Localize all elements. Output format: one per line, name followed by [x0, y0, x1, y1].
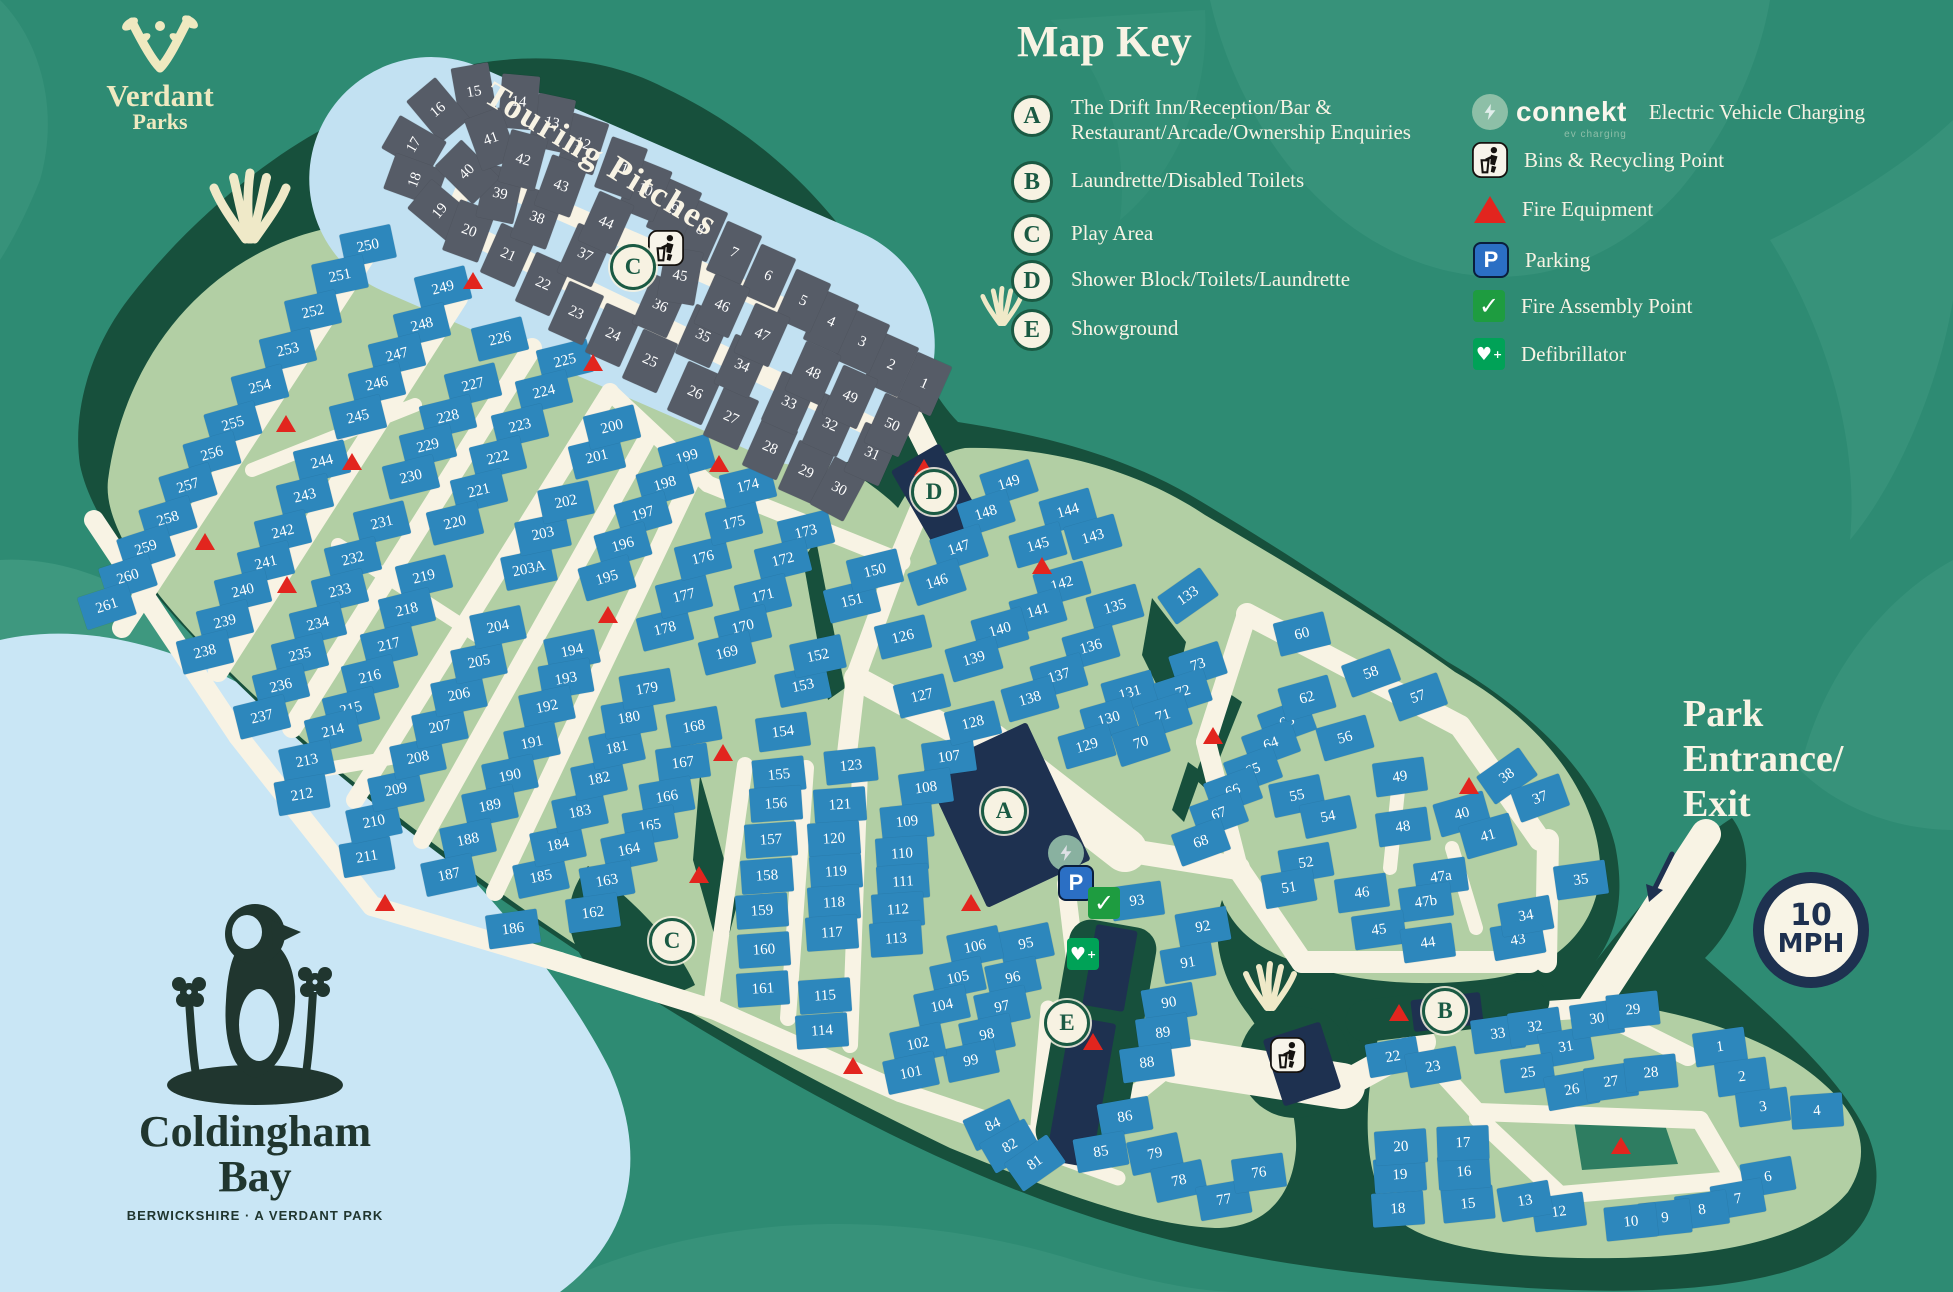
fire-equipment-icon[interactable] [1611, 1137, 1631, 1154]
bins-icon [1472, 142, 1508, 178]
speed-limit-sign: 10 MPH [1753, 872, 1869, 988]
holiday-pitch-17[interactable]: 17 [1436, 1125, 1489, 1161]
fire-assembly-icon[interactable]: ✓ [1086, 885, 1122, 921]
speed-value: 10 [1790, 901, 1832, 931]
key-marker-b: B [1011, 161, 1053, 203]
legend-label-bins: Bins & Recycling Point [1524, 148, 1724, 173]
holiday-pitch-76[interactable]: 76 [1231, 1153, 1287, 1194]
fire-equipment-icon[interactable] [689, 866, 709, 883]
speed-unit: MPH [1778, 931, 1845, 958]
holiday-pitch-162[interactable]: 162 [565, 893, 621, 934]
ev-charging-icon [1472, 94, 1508, 130]
fire-equipment-icon[interactable] [1032, 557, 1052, 574]
verdant-leaf-icon [118, 14, 202, 80]
key-marker-c: C [1011, 214, 1053, 256]
holiday-pitch-10[interactable]: 10 [1603, 1202, 1658, 1241]
holiday-pitch-157[interactable]: 157 [744, 821, 798, 859]
key-label-d: Shower Block/Toilets/Laundrette [1071, 260, 1350, 292]
parking-icon: P [1473, 242, 1509, 278]
map-marker-e[interactable]: E [1044, 1000, 1090, 1046]
map-marker-c[interactable]: C [610, 244, 656, 290]
holiday-pitch-15[interactable]: 15 [1440, 1184, 1495, 1223]
connekt-wordmark: connekt ev charging [1516, 96, 1627, 128]
fire-equipment-icon[interactable] [276, 415, 296, 432]
holiday-pitch-123[interactable]: 123 [823, 746, 878, 785]
holiday-pitch-28[interactable]: 28 [1623, 1053, 1678, 1092]
legend-label-ev: Electric Vehicle Charging [1649, 100, 1865, 125]
road [1478, 1112, 1700, 1120]
legend-label-assembly: Fire Assembly Point [1521, 294, 1693, 319]
key-label-e: Showground [1071, 309, 1178, 341]
fire-equipment-icon[interactable] [1459, 777, 1479, 794]
map-key-title: Map Key [1017, 16, 1192, 67]
holiday-pitch-44[interactable]: 44 [1400, 923, 1456, 964]
holiday-pitch-158[interactable]: 158 [740, 857, 794, 895]
verdant-parks-logo: Verdant Parks [70, 14, 250, 133]
legend-row-fire: Fire Equipment [1474, 196, 1653, 223]
key-row-b: B Laundrette/Disabled Toilets [1011, 161, 1304, 203]
fire-equipment-icon[interactable] [277, 576, 297, 593]
holiday-pitch-3[interactable]: 3 [1735, 1087, 1791, 1128]
park-tagline: BERWICKSHIRE · A VERDANT PARK [120, 1208, 390, 1223]
fire-equipment-icon [1474, 196, 1506, 223]
fire-equipment-icon[interactable] [709, 455, 729, 472]
key-marker-d: D [1011, 260, 1053, 302]
fire-equipment-icon[interactable] [961, 894, 981, 911]
coldingham-bay-logo: Coldingham Bay BERWICKSHIRE · A VERDANT … [120, 880, 390, 1223]
fire-equipment-icon[interactable] [598, 606, 618, 623]
map-marker-b[interactable]: B [1422, 988, 1468, 1034]
key-row-e: E Showground [1011, 309, 1178, 351]
holiday-pitch-48[interactable]: 48 [1375, 807, 1431, 848]
key-row-a: A The Drift Inn/Reception/Bar & Restaura… [1011, 95, 1411, 145]
legend-label-defib: Defibrillator [1521, 342, 1626, 367]
fire-equipment-icon[interactable] [583, 354, 603, 371]
key-label-c: Play Area [1071, 214, 1153, 246]
key-label-b: Laundrette/Disabled Toilets [1071, 161, 1304, 193]
holiday-pitch-159[interactable]: 159 [735, 892, 789, 930]
park-map: 2502512522532542552562572582592602612492… [0, 0, 1953, 1292]
holiday-pitch-120[interactable]: 120 [807, 820, 861, 858]
holiday-pitch-29[interactable]: 29 [1605, 990, 1660, 1029]
legend-row-bins: Bins & Recycling Point [1472, 142, 1724, 178]
holiday-pitch-4[interactable]: 4 [1790, 1092, 1844, 1130]
key-label-a: The Drift Inn/Reception/Bar & Restaurant… [1071, 95, 1411, 145]
legend-label-fire: Fire Equipment [1522, 197, 1653, 222]
holiday-pitch-88[interactable]: 88 [1119, 1043, 1175, 1084]
fire-equipment-icon[interactable] [463, 272, 483, 289]
holiday-pitch-49[interactable]: 49 [1372, 757, 1428, 798]
key-marker-e: E [1011, 309, 1053, 351]
defibrillator-icon: ♥+ [1473, 338, 1505, 370]
holiday-pitch-154[interactable]: 154 [755, 712, 811, 753]
holiday-pitch-113[interactable]: 113 [869, 920, 923, 958]
fire-equipment-icon[interactable] [1203, 727, 1223, 744]
key-row-c: C Play Area [1011, 214, 1153, 256]
holiday-pitch-186[interactable]: 186 [485, 909, 541, 950]
legend-row-ev: connekt ev charging Electric Vehicle Cha… [1472, 94, 1865, 130]
connekt-logo: connekt ev charging [1472, 94, 1627, 130]
key-row-d: D Shower Block/Toilets/Laundrette [1011, 260, 1350, 302]
puffin-icon [155, 880, 355, 1110]
holiday-pitch-121[interactable]: 121 [813, 786, 867, 824]
holiday-pitch-156[interactable]: 156 [749, 785, 803, 823]
holiday-pitch-160[interactable]: 160 [737, 931, 791, 969]
key-marker-a: A [1011, 95, 1053, 137]
map-marker-d[interactable]: D [911, 469, 957, 515]
verdant-subtitle: Parks [70, 111, 250, 133]
fire-equipment-icon[interactable] [195, 533, 215, 550]
holiday-pitch-18[interactable]: 18 [1371, 1190, 1425, 1228]
verdant-title: Verdant [70, 80, 250, 111]
fire-assembly-icon: ✓ [1473, 290, 1505, 322]
holiday-pitch-117[interactable]: 117 [805, 914, 859, 952]
fire-equipment-icon[interactable] [713, 744, 733, 761]
park-entrance-label: Park Entrance/ Exit [1683, 692, 1843, 826]
holiday-pitch-161[interactable]: 161 [736, 970, 790, 1008]
holiday-pitch-45[interactable]: 45 [1351, 910, 1407, 951]
holiday-pitch-35[interactable]: 35 [1553, 860, 1609, 901]
legend-row-parking: P Parking [1473, 242, 1590, 278]
legend-row-assembly: ✓ Fire Assembly Point [1473, 290, 1693, 322]
holiday-pitch-114[interactable]: 114 [795, 1012, 849, 1050]
legend-row-defib: ♥+ Defibrillator [1473, 338, 1626, 370]
holiday-pitch-20[interactable]: 20 [1374, 1128, 1428, 1166]
fire-equipment-icon[interactable] [843, 1057, 863, 1074]
holiday-pitch-47b[interactable]: 47b [1398, 882, 1454, 923]
holiday-pitch-115[interactable]: 115 [798, 977, 852, 1015]
holiday-pitch-46[interactable]: 46 [1334, 873, 1390, 914]
connekt-sub: ev charging [1564, 129, 1627, 140]
bins-icon[interactable] [1270, 1037, 1306, 1073]
defibrillator-icon[interactable]: ♥+ [1065, 936, 1101, 972]
park-name-line1: Coldingham [120, 1110, 390, 1155]
legend-label-parking: Parking [1525, 248, 1590, 273]
fire-equipment-icon[interactable] [1389, 1004, 1409, 1021]
park-name-line2: Bay [120, 1155, 390, 1200]
map-marker-c[interactable]: C [649, 918, 695, 964]
map-marker-a[interactable]: A [981, 788, 1027, 834]
fire-equipment-icon[interactable] [342, 453, 362, 470]
